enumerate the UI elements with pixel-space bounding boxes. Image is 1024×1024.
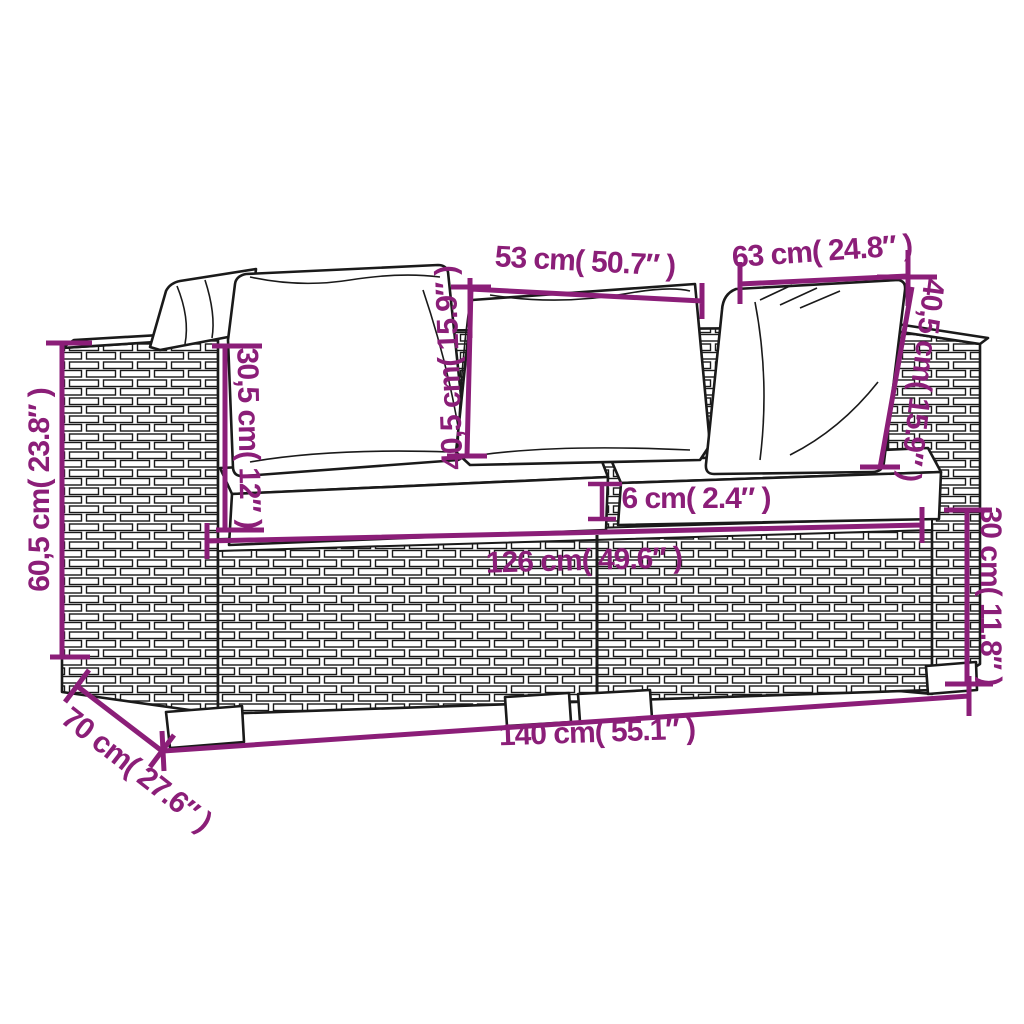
dimension-diagram: 53 cm( 50.7″ ) 63 cm( 24.8″ ) 40,5 cm( 1… <box>0 0 1024 1024</box>
dim-label-overall-width: 140 cm( 55.1″ ) <box>498 715 695 752</box>
dim-label-armrest-above-seat-height: 30,5 cm( 12″ ) <box>231 348 264 529</box>
pillow-right <box>706 280 905 474</box>
dim-label-seat-cushion-thickness: 6 cm( 2.4″ ) <box>621 484 770 514</box>
pillow-center <box>456 284 710 465</box>
foot-left <box>166 706 244 748</box>
sofa <box>62 265 988 748</box>
dim-label-inner-seat-width: 126 cm( 49.6″ ) <box>486 543 683 578</box>
dim-label-base-height: 30 cm( 11.8″ ) <box>975 507 1005 686</box>
dim-label-overall-height: 60,5 cm( 23.8″ ) <box>25 388 55 592</box>
dim-label-back-cushion-height-center: 40,5 cm( 15.9″ ) <box>431 266 468 470</box>
sofa-line-art <box>0 0 1024 1024</box>
